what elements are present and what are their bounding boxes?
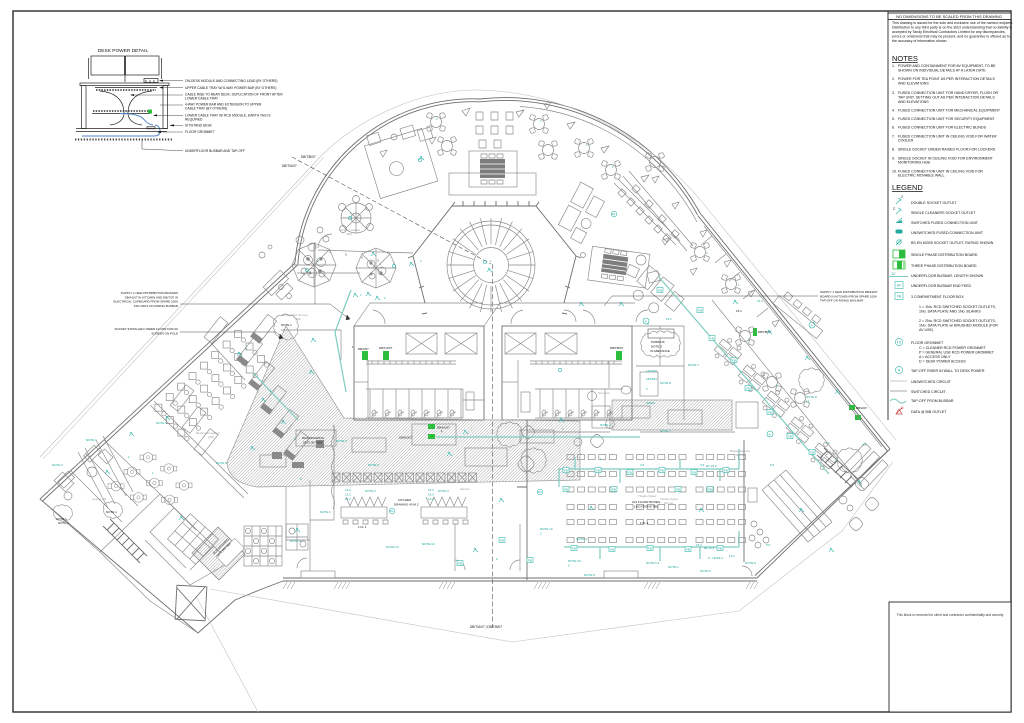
svg-text:Lounge 2/8: Lounge 2/8 — [92, 497, 106, 501]
svg-text:the accuracy of information sh: the accuracy of information shown. — [892, 39, 948, 43]
svg-text:1 = 1No. RCD SWITCHED SOCKET O: 1 = 1No. RCD SWITCHED SOCKET OUTLETS, — [919, 305, 996, 309]
svg-text:SWITCHED CIRCUIT: SWITCHED CIRCUIT — [911, 390, 947, 394]
svg-text:LEGEND: LEGEND — [892, 183, 923, 192]
svg-text:SCREEN ON POLE: SCREEN ON POLE — [151, 331, 178, 335]
svg-text:REQUIRED: REQUIRED — [185, 117, 203, 121]
svg-text:NOTE 5: NOTE 5 — [651, 345, 662, 349]
svg-text:DOUBLE SOCKET OUTLET: DOUBLE SOCKET OUTLET — [911, 201, 957, 205]
svg-text:POWER FOR TEA POINT AS PER INT: POWER FOR TEA POINT AS PER INTERACTION D… — [898, 77, 995, 81]
svg-text:SINGLE SOCKET UNDER RAISED FLO: SINGLE SOCKET UNDER RAISED FLOOR FOR LOC… — [898, 148, 996, 152]
svg-text:FG: FG — [538, 490, 542, 494]
svg-text:UNSWITCHED FUSED CONNECTION UN: UNSWITCHED FUSED CONNECTION UNIT — [911, 231, 984, 235]
svg-text:2.: 2. — [892, 77, 895, 81]
svg-text:NOTE 8: NOTE 8 — [584, 573, 595, 577]
svg-text:NOTE 6: NOTE 6 — [700, 569, 711, 573]
svg-text:NOTE 1: NOTE 1 — [320, 510, 331, 514]
svg-text:13.3: 13.3 — [428, 493, 434, 497]
svg-text:13.3: 13.3 — [428, 488, 434, 492]
svg-text:Theatre Space: Theatre Space — [638, 494, 657, 498]
svg-text:NOTE 1: NOTE 1 — [156, 421, 167, 425]
svg-text:This block is removed for clie: This block is removed for client and con… — [897, 613, 1004, 617]
svg-text:A: A — [645, 319, 647, 323]
svg-text:A: A — [811, 323, 813, 327]
svg-text:FUSED CONNECTION UNIT FOR ELEC: FUSED CONNECTION UNIT FOR ELECTRIC BLIND… — [898, 126, 987, 130]
svg-text:(3/8): (3/8) — [295, 317, 301, 321]
svg-text:2 = 2No. RCD SWITCHED SOCKET O: 2 = 2No. RCD SWITCHED SOCKET OUTLETS, — [919, 319, 996, 323]
svg-text:NOTE 7: NOTE 7 — [660, 429, 671, 433]
svg-text:3.: 3. — [892, 91, 895, 95]
svg-text:DB/T/B/07: DB/T/B/07 — [301, 155, 316, 159]
svg-text:5.6: 5.6 — [766, 543, 771, 547]
svg-text:DB/T/A/07: DB/T/A/07 — [379, 346, 393, 350]
svg-text:FG: FG — [390, 509, 394, 513]
svg-text:A = ACCESS ONLY: A = ACCESS ONLY — [919, 355, 951, 359]
svg-text:FLOOR GROMMET: FLOOR GROMMET — [911, 341, 944, 345]
svg-text:DATA @ B/B OUTLET: DATA @ B/B OUTLET — [911, 410, 947, 414]
svg-text:ON-DESK MODULE AND CONNECTING: ON-DESK MODULE AND CONNECTING LEAD (BY O… — [185, 79, 277, 83]
svg-text:1No. DATA PLATE AND 1No. BLANK: 1No. DATA PLATE AND 1No. BLANKS — [919, 310, 981, 314]
svg-text:SWITCHED FUSED CONNECTION UNIT: SWITCHED FUSED CONNECTION UNIT — [911, 221, 979, 225]
svg-text:NOTE 10: NOTE 10 — [422, 542, 435, 546]
svg-text:5.6: 5.6 — [770, 463, 775, 467]
svg-text:Servery: Servery — [460, 487, 470, 491]
svg-text:NOTE 1: NOTE 1 — [688, 363, 699, 367]
svg-text:NOTE 8: NOTE 8 — [660, 381, 671, 385]
svg-text:NOTE 1: NOTE 1 — [86, 438, 97, 442]
svg-text:FG: FG — [897, 340, 902, 344]
svg-text:NOTE 10: NOTE 10 — [540, 527, 553, 531]
svg-text:errors or omissions that may b: errors or omissions that may be present,… — [892, 35, 1010, 39]
svg-text:FG: FG — [612, 212, 616, 216]
svg-text:3.6: 3.6 — [640, 463, 645, 467]
svg-text:FLOOR GROMMET: FLOOR GROMMET — [185, 130, 215, 134]
svg-text:MONITORING HUB: MONITORING HUB — [898, 161, 930, 165]
svg-text:DB/K1/07: DB/K1/07 — [437, 426, 450, 430]
svg-text:NOTE 8: NOTE 8 — [806, 395, 817, 399]
svg-text:TAP-OFF RISER IN WALL TO DESK: TAP-OFF RISER IN WALL TO DESK POWER — [911, 369, 985, 373]
svg-text:12: 12 — [891, 271, 896, 276]
svg-text:(3/8): (3/8) — [346, 232, 352, 236]
svg-text:DB/T/B/07: DB/T/B/07 — [610, 346, 624, 350]
svg-text:DB/A/07: DB/A/07 — [358, 347, 369, 351]
svg-text:MAMA: MAMA — [646, 401, 655, 405]
svg-text:2: 2 — [901, 195, 903, 199]
svg-text:FUSED CONNECTION UNIT FOR SECU: FUSED CONNECTION UNIT FOR SECURITY EQUIP… — [898, 117, 996, 121]
svg-text:15.1: 15.1 — [757, 299, 763, 303]
svg-text:7.: 7. — [892, 135, 895, 139]
svg-text:EF 11.2: EF 11.2 — [704, 546, 715, 550]
svg-text:NOTE 4: NOTE 4 — [600, 423, 611, 427]
svg-text:DB/T/A/07: DB/T/A/07 — [282, 164, 297, 168]
svg-text:ELECTRIC MOVABLE WALL: ELECTRIC MOVABLE WALL — [898, 174, 945, 178]
svg-text:FUSED CONNECTION UNIT FOR HAND: FUSED CONNECTION UNIT FOR HAND DRYER, FL… — [898, 91, 999, 95]
svg-text:NOTE 2: NOTE 2 — [52, 463, 63, 467]
svg-text:RDA DRAWING: RDA DRAWING — [302, 436, 325, 440]
svg-text:6.: 6. — [892, 126, 895, 130]
svg-text:NOTE 10: NOTE 10 — [386, 545, 399, 549]
svg-text:THREE PHASE DISTRIBUTION BOARD: THREE PHASE DISTRIBUTION BOARD — [911, 264, 977, 268]
svg-text:SHOWN ON INDIVIDUAL DETAILS AT: SHOWN ON INDIVIDUAL DETAILS AT A LATER D… — [898, 69, 986, 73]
svg-text:Tea point: Tea point — [598, 391, 610, 395]
svg-text:14.2: 14.2 — [345, 497, 351, 501]
svg-text:NOTE 10: NOTE 10 — [568, 559, 581, 563]
svg-text:TAP UNIT, SETTING OUT AS PER I: TAP UNIT, SETTING OUT AS PER INTERACTION… — [898, 96, 995, 100]
svg-text:8.: 8. — [892, 148, 895, 152]
svg-text:NOTE 4: NOTE 4 — [576, 537, 587, 541]
svg-text:D = DESK POWER ACCESS: D = DESK POWER ACCESS — [919, 360, 966, 364]
svg-text:TAP-OFF ON RISING BUS-BAR: TAP-OFF ON RISING BUS-BAR — [820, 299, 864, 303]
svg-text:FB: FB — [897, 294, 902, 298]
svg-text:2 - NOTE 1: 2 - NOTE 1 — [708, 556, 724, 560]
svg-text:SINGLE CLEANERS SOCKET OUTLET: SINGLE CLEANERS SOCKET OUTLET — [911, 211, 976, 215]
svg-text:DB/T/A/07 | DB/T/B/07: DB/T/A/07 | DB/T/B/07 — [470, 625, 502, 629]
svg-text:10.: 10. — [892, 170, 897, 174]
svg-text:SIT/STAND DESK: SIT/STAND DESK — [185, 124, 213, 128]
svg-text:15.1: 15.1 — [666, 317, 672, 321]
svg-text:accepted by Tandy Electrical C: accepted by Tandy Electrical Contractors… — [892, 30, 1006, 34]
svg-text:C = CLEANER RCD POWER GROMMET: C = CLEANER RCD POWER GROMMET — [919, 346, 987, 350]
svg-text:AND ELEVATIONS: AND ELEVATIONS — [898, 82, 929, 86]
svg-text:EF: EF — [897, 283, 901, 287]
svg-text:3 COMPARTMENT FLOOR BOX: 3 COMPARTMENT FLOOR BOX — [911, 295, 964, 299]
svg-text:NOTE 8: NOTE 8 — [216, 461, 227, 465]
svg-text:AND ELEVATIONS: AND ELEVATIONS — [898, 100, 929, 104]
svg-text:UNDERFLOOR BUSBAR END FEED: UNDERFLOOR BUSBAR END FEED — [911, 284, 972, 288]
svg-text:180 set: 180 set — [664, 501, 673, 505]
svg-text:13.2: 13.2 — [345, 488, 351, 492]
svg-text:150/184: 150/184 — [646, 369, 657, 373]
svg-text:UNSWITCHED CIRCUIT: UNSWITCHED CIRCUIT — [911, 380, 952, 384]
svg-text:NOTE 9: NOTE 9 — [290, 539, 301, 543]
svg-text:UPPER CABLE TRAY W/ 6-WAY POWE: UPPER CABLE TRAY W/ 6-WAY POWER BAR (BY … — [185, 86, 276, 90]
svg-text:15.2: 15.2 — [696, 543, 702, 547]
svg-text:LOWER CABLE TRAY: LOWER CABLE TRAY — [185, 96, 219, 100]
svg-text:NOTE 1: NOTE 1 — [106, 510, 117, 514]
svg-text:FUSED CONNECTION UNIT FOR MECH: FUSED CONNECTION UNIT FOR MECHANICAL EQU… — [898, 109, 1001, 113]
svg-text:(3/8): (3/8) — [208, 435, 214, 439]
svg-text:DB/H/07: DB/H/07 — [856, 406, 867, 410]
svg-text:KITCHEN: KITCHEN — [398, 498, 411, 502]
svg-text:15.1: 15.1 — [736, 309, 742, 313]
svg-text:3.6: 3.6 — [700, 463, 705, 467]
svg-text:IN ABEYANCE: IN ABEYANCE — [650, 349, 670, 353]
svg-text:3.4: 3.4 — [826, 441, 830, 445]
svg-text:NOTE 6: NOTE 6 — [745, 561, 756, 565]
svg-text:A: A — [769, 432, 771, 436]
svg-text:NOTE 9: NOTE 9 — [368, 463, 379, 467]
svg-text:NOTE 5: NOTE 5 — [336, 439, 347, 443]
svg-text:NOTE 1: NOTE 1 — [668, 565, 679, 569]
svg-text:NOTE 1: NOTE 1 — [281, 323, 292, 327]
svg-text:NOTE 1: NOTE 1 — [58, 521, 69, 525]
svg-text:2x4 FLOOR BOXES: 2x4 FLOOR BOXES — [632, 500, 660, 504]
svg-text:LOCATIONS TBC: LOCATIONS TBC — [634, 505, 659, 509]
svg-text:C: C — [562, 427, 564, 431]
svg-text:NOTE 2: NOTE 2 — [438, 489, 449, 493]
svg-text:DRAWING 42-M 2: DRAWING 42-M 2 — [394, 503, 419, 507]
svg-text:NOTE 6 2: NOTE 6 2 — [646, 561, 660, 565]
svg-text:1.: 1. — [892, 64, 895, 68]
svg-text:NOTES: NOTES — [892, 54, 918, 63]
svg-text:TAP-OFFS ON RISING BUSBAR: TAP-OFFS ON RISING BUSBAR — [134, 304, 179, 308]
svg-text:9.: 9. — [892, 157, 895, 161]
svg-text:1No. DATA PLATE w/ BRUSHED MOD: 1No. DATA PLATE w/ BRUSHED MODULE (FOR — [919, 324, 998, 328]
svg-text:184/184: 184/184 — [646, 377, 657, 381]
svg-text:UNDERFLOOR BUSBAR, LENGTH SHOW: UNDERFLOOR BUSBAR, LENGTH SHOWN — [911, 274, 984, 278]
svg-text:13.2: 13.2 — [345, 493, 351, 497]
svg-text:BS EN 60309 SOCKET OUTLET, RAT: BS EN 60309 SOCKET OUTLET, RATING SHOWN — [911, 241, 994, 245]
svg-text:POB/DUS: POB/DUS — [651, 340, 665, 344]
svg-text:14.3: 14.3 — [428, 497, 434, 501]
svg-text:DB/K2/07: DB/K2/07 — [399, 436, 412, 440]
svg-text:NO DIMENSIONS TO BE SCALED FRO: NO DIMENSIONS TO BE SCALED FROM THIS DRA… — [896, 14, 1002, 19]
svg-text:4.: 4. — [892, 109, 895, 113]
svg-text:UNDERFLOOR BUSBAR AND TAP-OFF: UNDERFLOOR BUSBAR AND TAP-OFF — [185, 149, 245, 153]
svg-text:Distribution to any third part: Distribution to any third party is on th… — [892, 26, 1012, 30]
svg-text:EF 15.2: EF 15.2 — [706, 464, 717, 468]
svg-text:P = GENERAL USE RCD POWER GROM: P = GENERAL USE RCD POWER GROMMET — [919, 351, 995, 355]
svg-text:400 sqft: 400 sqft — [736, 453, 746, 457]
svg-text:NOTE 2: NOTE 2 — [365, 489, 376, 493]
svg-text:5.: 5. — [892, 117, 895, 121]
svg-text:COOLER: COOLER — [898, 139, 914, 143]
svg-text:SINGLE PHASE DISTRIBUTION BOAR: SINGLE PHASE DISTRIBUTION BOARD — [911, 253, 978, 257]
svg-text:This drawing is issued for the: This drawing is issued for the sole and … — [892, 21, 1013, 25]
svg-text:AV USE): AV USE) — [919, 328, 933, 332]
svg-text:CABLE TRAY (BY OTHERS): CABLE TRAY (BY OTHERS) — [185, 106, 227, 110]
svg-text:POWER AND CONTAINMENT FOR AV E: POWER AND CONTAINMENT FOR AV EQUIPMENT, … — [898, 64, 996, 68]
svg-text:13.2: 13.2 — [729, 554, 735, 558]
svg-text:3.4: 3.4 — [862, 443, 867, 447]
svg-text:TAP-OFF FROM BUSBAR: TAP-OFF FROM BUSBAR — [911, 399, 954, 403]
svg-text:1 FL 1: 1 FL 1 — [358, 525, 367, 529]
svg-text:DESK POWER DETAIL: DESK POWER DETAIL — [98, 48, 149, 54]
svg-text:1 FL 1: 1 FL 1 — [640, 521, 649, 525]
